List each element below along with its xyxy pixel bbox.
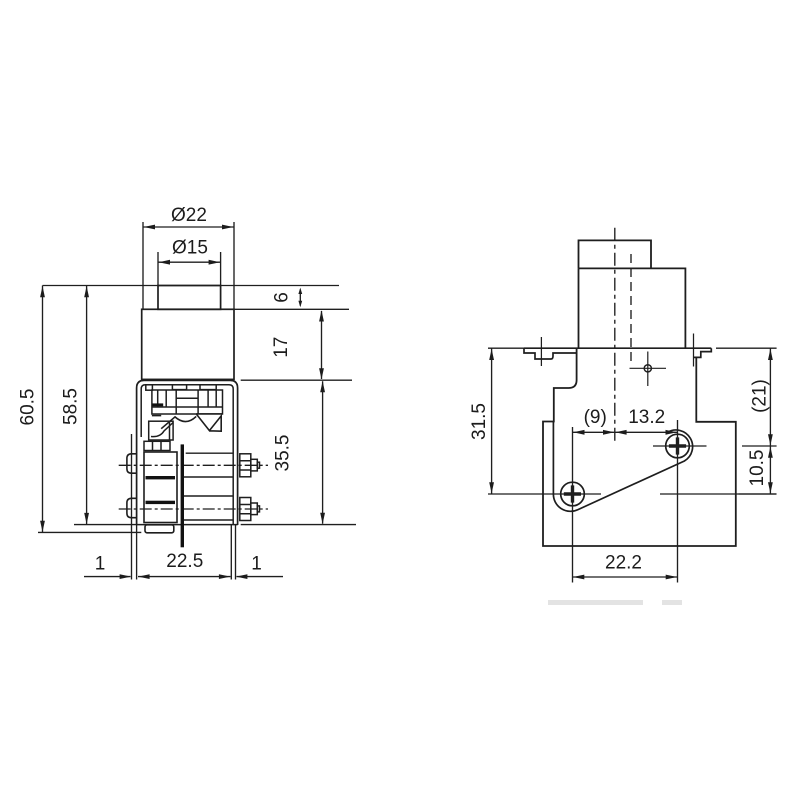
svg-text:Ø22: Ø22 xyxy=(171,205,207,226)
svg-text:17: 17 xyxy=(271,337,292,358)
svg-text:35.5: 35.5 xyxy=(273,435,294,472)
svg-text:22.5: 22.5 xyxy=(166,551,203,572)
svg-text:6: 6 xyxy=(271,292,292,303)
svg-text:1: 1 xyxy=(95,553,106,574)
svg-text:(9): (9) xyxy=(584,407,607,428)
svg-text:1: 1 xyxy=(251,553,262,574)
svg-text:22.2: 22.2 xyxy=(605,553,642,574)
svg-text:13.2: 13.2 xyxy=(628,407,665,428)
svg-text:10.5: 10.5 xyxy=(747,450,768,487)
svg-text:(21): (21) xyxy=(750,379,771,413)
svg-text:58.5: 58.5 xyxy=(61,388,82,425)
svg-text:31.5: 31.5 xyxy=(469,403,490,440)
svg-text:Ø15: Ø15 xyxy=(172,238,208,259)
svg-text:60.5: 60.5 xyxy=(17,389,38,426)
